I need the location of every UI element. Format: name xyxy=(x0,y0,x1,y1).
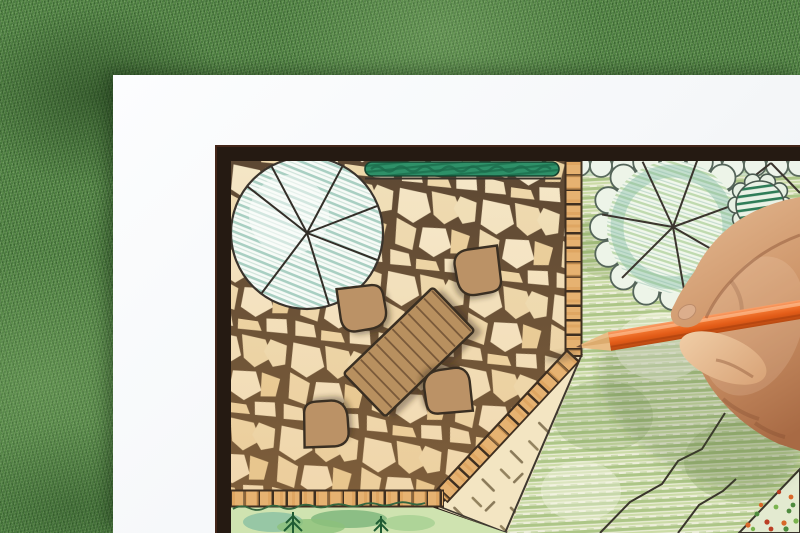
hedge-symbol xyxy=(365,162,561,179)
patio-chair xyxy=(301,395,353,448)
plan-canvas xyxy=(231,161,800,533)
photo-scene xyxy=(0,0,800,533)
garden-plan-drawing xyxy=(231,161,800,533)
